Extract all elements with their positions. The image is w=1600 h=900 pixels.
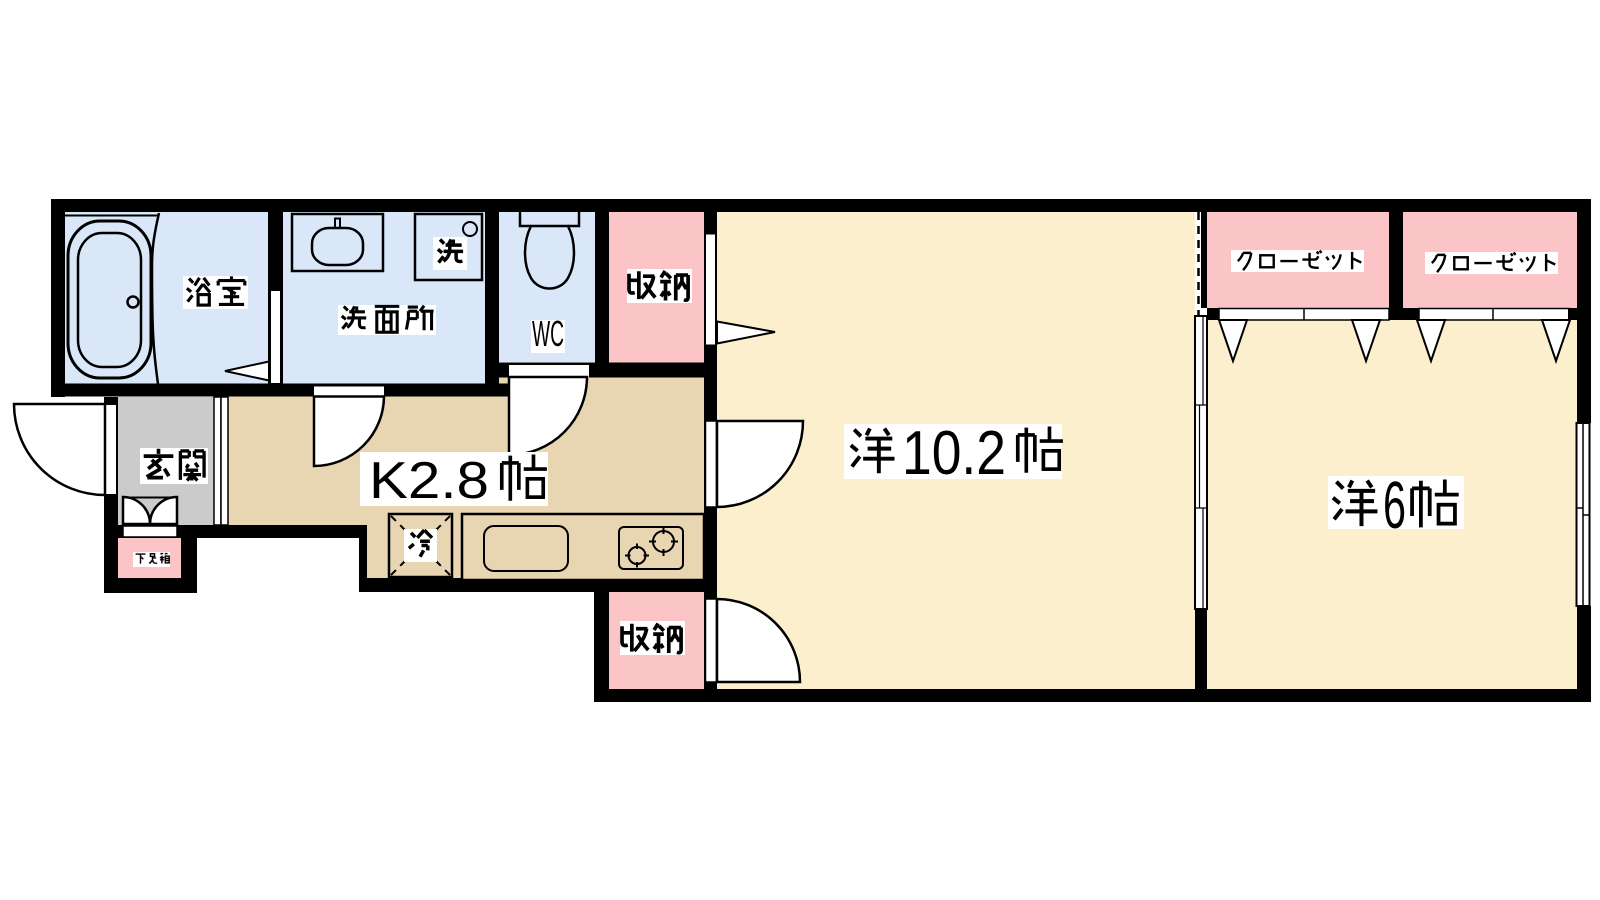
svg-text:6: 6 <box>1383 468 1406 543</box>
svg-text:WC: WC <box>532 313 564 354</box>
svg-text:K2.8: K2.8 <box>369 452 489 510</box>
svg-text:10.2: 10.2 <box>902 419 1006 488</box>
